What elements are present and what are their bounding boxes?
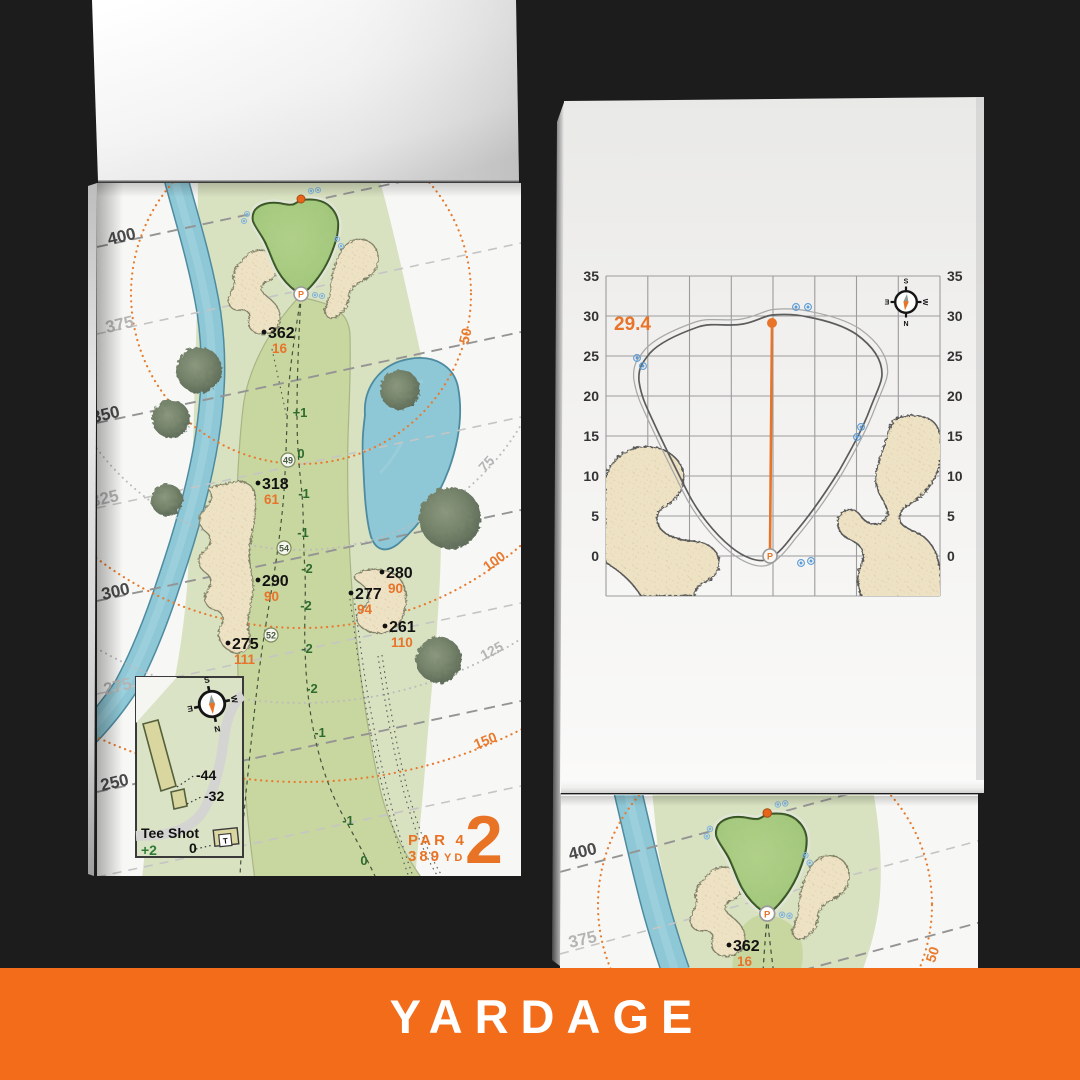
svg-text:30: 30 (583, 308, 599, 324)
svg-text:35: 35 (583, 268, 599, 284)
svg-text:YARDAGE: YARDAGE (390, 990, 705, 1043)
svg-text:362: 362 (733, 938, 760, 955)
svg-text:5: 5 (947, 508, 955, 524)
svg-text:35: 35 (947, 268, 963, 284)
svg-text:20: 20 (947, 388, 963, 404)
svg-text:10: 10 (583, 468, 599, 484)
svg-text:25: 25 (583, 348, 599, 364)
svg-text:20: 20 (583, 388, 599, 404)
svg-text:10: 10 (947, 468, 963, 484)
svg-text:0: 0 (591, 548, 599, 564)
svg-text:25: 25 (947, 348, 963, 364)
svg-text:15: 15 (583, 428, 599, 444)
svg-text:5: 5 (591, 508, 599, 524)
svg-text:0: 0 (947, 548, 955, 564)
svg-text:P: P (764, 909, 771, 920)
svg-text:15: 15 (947, 428, 963, 444)
svg-text:29.4: 29.4 (614, 314, 651, 335)
svg-text:16: 16 (737, 954, 753, 969)
svg-text:P: P (767, 552, 773, 562)
svg-text:30: 30 (947, 308, 963, 324)
